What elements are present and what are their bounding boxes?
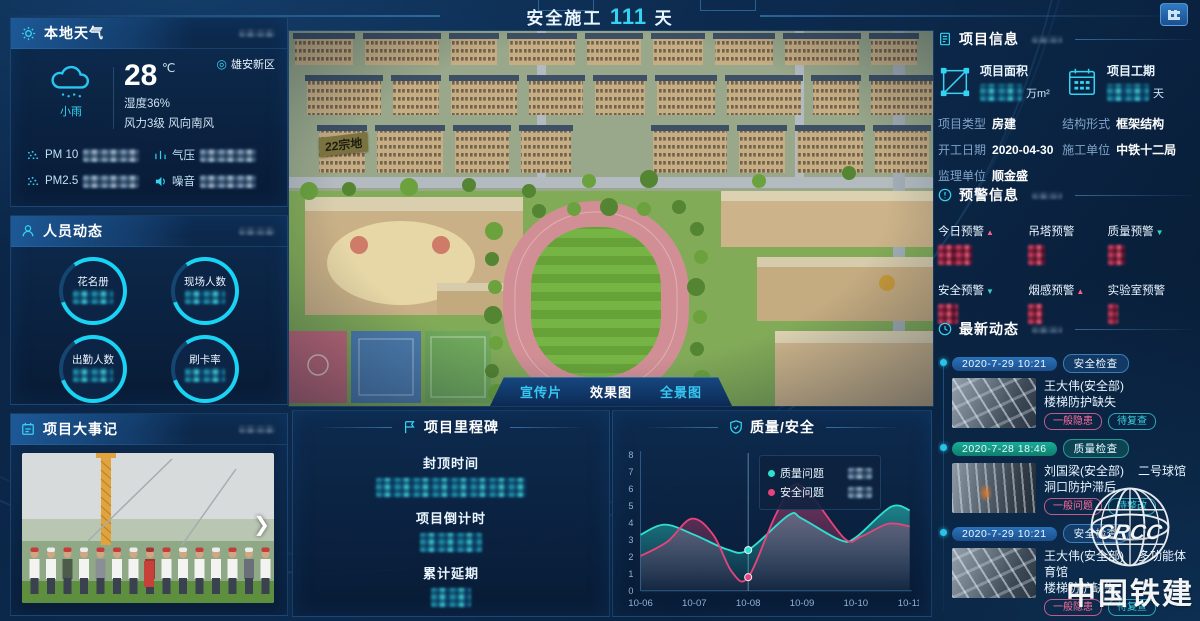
metric-pressure: 气压 — [154, 147, 273, 163]
quality-title: 质量/安全 — [750, 417, 815, 437]
field-label: 施工单位 — [1062, 143, 1110, 157]
news-header: 最新动态 — [938, 316, 1192, 342]
site-3d-view[interactable]: 22宗地 宣传片 效果图 全景图 — [288, 30, 934, 407]
apps-button[interactable] — [1160, 3, 1188, 26]
header-decoration — [1032, 326, 1062, 333]
warning-label: 烟感预警 — [1028, 285, 1074, 297]
news-title: 最新动态 — [959, 319, 1019, 339]
field-value: 框架结构 — [1116, 117, 1164, 131]
timeline-dot — [940, 529, 947, 536]
tab-panorama[interactable]: 全景图 — [660, 382, 702, 401]
svg-text:3: 3 — [628, 535, 633, 545]
tooltip-value-blurred — [848, 487, 872, 498]
safety-days-value: 111 — [607, 4, 650, 29]
field-value: 房建 — [992, 117, 1016, 131]
alert-shield-icon — [938, 188, 952, 202]
metric-value-blurred — [83, 175, 139, 188]
safety-series-label: 安全问题 — [780, 484, 824, 500]
ring-label: 花名册 — [59, 274, 127, 289]
news-photo[interactable] — [952, 548, 1036, 598]
timeline-dot — [940, 444, 947, 451]
ring-value-blurred — [185, 290, 225, 304]
safety-days-unit: 天 — [655, 9, 674, 28]
divider — [113, 67, 114, 129]
ring-attendance: 出勤人数 — [59, 335, 127, 403]
quality-series-label: 质量问题 — [780, 465, 824, 481]
personnel-panel-header: 人员动态 — [11, 216, 287, 247]
quality-chart[interactable]: 01234567810-0610-0710-0810-0910-1010-11 … — [613, 443, 931, 613]
news-time: 2020-7-29 10:21 — [952, 527, 1057, 541]
trend-up-icon: ▲ — [986, 228, 994, 237]
svg-text:8: 8 — [628, 450, 633, 460]
milestone-rows: 封顶时间 项目倒计时 累计延期 — [293, 453, 609, 618]
metric-label: PM2.5 — [45, 175, 78, 187]
svg-text:6: 6 — [628, 484, 633, 494]
weather-metrics: PM 10 气压 PM2.5 噪音 — [27, 147, 273, 189]
news-item[interactable]: 2020-7-29 10:21 安全检查 王大伟(安全部) 楼梯防护缺失 一般隐… — [952, 354, 1192, 430]
page-title: 安全施工 111 天 — [0, 4, 1200, 30]
shield-check-icon — [729, 420, 743, 434]
stat-value-blurred — [1107, 84, 1149, 101]
field-label: 项目类型 — [938, 117, 986, 131]
header-decoration — [239, 227, 275, 235]
milestone-value-blurred — [420, 533, 482, 552]
header-rule — [1075, 329, 1192, 330]
warning-crane: 吊塔预警 — [1028, 222, 1101, 265]
field-label: 监理单位 — [938, 169, 986, 183]
safety-series-dot — [768, 489, 775, 496]
warning-value-blurred — [938, 245, 972, 265]
stat-area: 项目面积 万m² — [938, 62, 1065, 101]
project-info-panel: 项目信息 项目面积 万m² 项目工期 天 项目类型房建 结构形式框架结构 开工日… — [938, 26, 1192, 178]
news-time: 2020-7-29 10:21 — [952, 357, 1057, 371]
project-fields: 项目类型房建 结构形式框架结构 开工日期2020-04-30 施工单位中铁十二局… — [938, 115, 1192, 184]
svg-text:10-11: 10-11 — [898, 598, 919, 609]
humidity-label: 湿度36% — [124, 95, 214, 111]
calendar-icon — [1065, 65, 1099, 99]
field-start-date: 开工日期2020-04-30 — [938, 141, 1056, 158]
milestone-countdown: 项目倒计时 — [416, 508, 486, 552]
header-rule — [1075, 195, 1192, 196]
ring-onsite: 现场人数 — [171, 257, 239, 325]
warning-label: 今日预警 — [938, 226, 984, 238]
field-structure: 结构形式框架结构 — [1062, 115, 1192, 132]
header-rule — [1075, 39, 1192, 40]
stat-unit: 万m² — [1026, 85, 1050, 101]
news-tag-severity: 一般隐患 — [1044, 413, 1102, 430]
warning-label: 质量预警 — [1108, 226, 1154, 238]
trend-down-icon: ▼ — [986, 287, 994, 296]
field-value: 顺金盛 — [992, 169, 1028, 183]
tab-promo-video[interactable]: 宣传片 — [520, 382, 562, 401]
svg-text:7: 7 — [628, 467, 633, 477]
rain-cloud-icon — [45, 61, 97, 101]
timeline-dot — [940, 359, 947, 366]
news-type-badge: 安全检查 — [1063, 354, 1129, 373]
speaker-icon — [154, 176, 167, 187]
personnel-rings: 花名册 现场人数 出勤人数 刷卡率 — [11, 247, 287, 403]
weather-condition: 小雨 — [29, 103, 113, 119]
events-photo[interactable]: ❯ — [22, 453, 274, 603]
milestone-delay: 累计延期 — [423, 563, 479, 607]
quality-header: 质量/安全 — [613, 411, 931, 443]
trend-up-icon: ▲ — [1076, 287, 1084, 296]
person-icon — [21, 224, 35, 238]
milestone-label: 封顶时间 — [423, 453, 479, 472]
metric-value-blurred — [200, 175, 256, 188]
particles-icon — [27, 176, 40, 187]
safety-days-label: 安全施工 — [526, 9, 602, 28]
milestone-label: 累计延期 — [423, 563, 479, 582]
milestone-panel: 项目里程碑 封顶时间 项目倒计时 累计延期 — [292, 410, 610, 617]
weather-condition-block: 小雨 — [29, 61, 113, 119]
warning-value-blurred — [1108, 245, 1125, 265]
personnel-title: 人员动态 — [43, 221, 103, 241]
stat-label: 项目工期 — [1107, 62, 1164, 79]
personnel-panel: 人员动态 花名册 现场人数 出勤人数 刷卡率 — [10, 215, 288, 405]
news-tag-status: 待复查 — [1108, 413, 1156, 430]
header-decoration — [239, 425, 275, 433]
stat-value-blurred — [980, 84, 1022, 101]
pressure-icon — [154, 150, 167, 161]
crcc-logo: CRCC 中国铁建 — [1066, 479, 1194, 613]
ring-label: 现场人数 — [171, 274, 239, 289]
svg-text:10-08: 10-08 — [736, 598, 761, 609]
project-stats: 项目面积 万m² 项目工期 天 — [938, 62, 1192, 101]
metric-pm25: PM2.5 — [27, 173, 146, 189]
project-info-title: 项目信息 — [959, 29, 1019, 49]
scene-tabs: 宣传片 效果图 全景图 — [490, 377, 732, 406]
location-pin-icon: ◎ — [217, 57, 227, 71]
svg-text:2: 2 — [628, 552, 633, 562]
field-type: 项目类型房建 — [938, 115, 1056, 132]
temperature-value: 28 — [124, 59, 157, 92]
metric-value-blurred — [83, 149, 139, 162]
crcc-name: 中国铁建 — [1066, 569, 1194, 613]
weather-panel: 本地天气 ◎ 雄安新区 小雨 28 ℃ 湿度36% 风力3级 风向南风 PM 1… — [10, 17, 288, 207]
metric-label: 噪音 — [172, 173, 195, 189]
warning-value-blurred — [1028, 245, 1045, 265]
milestone-label: 项目倒计时 — [416, 508, 486, 527]
calendar-note-icon — [21, 422, 35, 436]
field-value: 中铁十二局 — [1116, 143, 1176, 157]
ring-roster: 花名册 — [59, 257, 127, 325]
milestone-value-blurred — [376, 478, 526, 497]
area-icon — [938, 65, 972, 99]
wind-label: 风力3级 风向南风 — [124, 115, 214, 131]
stat-label: 项目面积 — [980, 62, 1050, 79]
document-icon — [938, 32, 952, 46]
svg-text:4: 4 — [628, 518, 633, 528]
quality-series-dot — [768, 470, 775, 477]
ring-value-blurred — [73, 290, 113, 304]
temperature-unit: ℃ — [162, 61, 175, 75]
grid-icon — [1168, 10, 1180, 20]
svg-text:10-10: 10-10 — [844, 598, 869, 609]
timeline-rail — [943, 358, 944, 612]
trend-down-icon: ▼ — [1156, 228, 1164, 237]
svg-text:10-06: 10-06 — [628, 598, 653, 609]
header-decoration — [239, 29, 275, 37]
tooltip-safety-row: 安全问题 — [768, 484, 872, 500]
group-photo — [22, 453, 274, 603]
ring-value-blurred — [73, 368, 113, 382]
tooltip-value-blurred — [848, 468, 872, 479]
warning-quality: 质量预警▼ — [1108, 222, 1192, 265]
field-value: 2020-04-30 — [992, 143, 1053, 157]
warnings-header: 预警信息 — [938, 182, 1192, 208]
location-label: 雄安新区 — [231, 56, 275, 72]
svg-text:10-07: 10-07 — [682, 598, 707, 609]
warnings-title: 预警信息 — [959, 185, 1019, 205]
particles-icon — [27, 150, 40, 161]
stat-unit: 天 — [1153, 85, 1164, 101]
field-label: 结构形式 — [1062, 117, 1110, 131]
quality-safety-panel: 质量/安全 01234567810-0610-0710-0810-0910-10… — [612, 410, 932, 617]
metric-noise: 噪音 — [154, 173, 273, 189]
svg-text:1: 1 — [628, 569, 633, 579]
flag-icon — [403, 420, 417, 434]
clock-icon — [938, 322, 952, 336]
header-decoration — [1032, 36, 1062, 43]
news-person: 王大伟(安全部) — [1044, 379, 1124, 393]
news-person: 刘国梁(安全部) — [1044, 464, 1124, 478]
news-photo[interactable] — [952, 463, 1036, 513]
svg-text:10-09: 10-09 — [790, 598, 815, 609]
ring-label: 出勤人数 — [59, 352, 127, 367]
aerial-render — [289, 31, 933, 406]
metric-value-blurred — [200, 149, 256, 162]
warning-today: 今日预警▲ — [938, 222, 1022, 265]
field-contractor: 施工单位中铁十二局 — [1062, 141, 1192, 158]
metric-label: PM 10 — [45, 149, 78, 161]
svg-text:0: 0 — [628, 586, 633, 596]
ring-value-blurred — [185, 368, 225, 382]
news-place: 二号球馆 — [1138, 464, 1186, 478]
ring-label: 刷卡率 — [171, 352, 239, 367]
crcc-abbr: CRCC — [1095, 521, 1165, 545]
news-issue: 楼梯防护缺失 — [1044, 394, 1156, 410]
metric-pm10: PM 10 — [27, 147, 146, 163]
warning-label: 实验室预警 — [1108, 285, 1166, 297]
events-panel: 项目大事记 ❯ — [10, 413, 288, 616]
chart-tooltip: 质量问题 安全问题 — [759, 455, 881, 510]
ring-cardrate: 刷卡率 — [171, 335, 239, 403]
warning-label: 吊塔预警 — [1028, 226, 1074, 238]
metric-label: 气压 — [172, 147, 195, 163]
svg-text:5: 5 — [628, 501, 633, 511]
news-photo[interactable] — [952, 378, 1036, 428]
tooltip-quality-row: 质量问题 — [768, 465, 872, 481]
warnings-grid: 今日预警▲ 吊塔预警 质量预警▼ 安全预警▼ 烟感预警▲ 实验室预警 — [938, 222, 1192, 324]
warning-label: 安全预警 — [938, 285, 984, 297]
milestone-title: 项目里程碑 — [424, 417, 499, 437]
news-time: 2020-7-28 18:46 — [952, 442, 1057, 456]
field-label: 开工日期 — [938, 143, 986, 157]
news-type-badge: 质量检查 — [1063, 439, 1129, 458]
milestone-value-blurred — [431, 588, 471, 607]
events-panel-header: 项目大事记 — [11, 414, 287, 445]
milestone-header: 项目里程碑 — [293, 411, 609, 443]
tab-render-view[interactable]: 效果图 — [590, 382, 632, 401]
milestone-topping: 封顶时间 — [376, 453, 526, 497]
stat-duration: 项目工期 天 — [1065, 62, 1192, 101]
warnings-panel: 预警信息 今日预警▲ 吊塔预警 质量预警▼ 安全预警▼ 烟感预警▲ 实验室预警 — [938, 182, 1192, 312]
header-decoration — [1032, 192, 1062, 199]
events-title: 项目大事记 — [43, 419, 118, 439]
weather-location: ◎ 雄安新区 — [217, 56, 275, 72]
next-arrow[interactable]: ❯ — [253, 515, 270, 535]
